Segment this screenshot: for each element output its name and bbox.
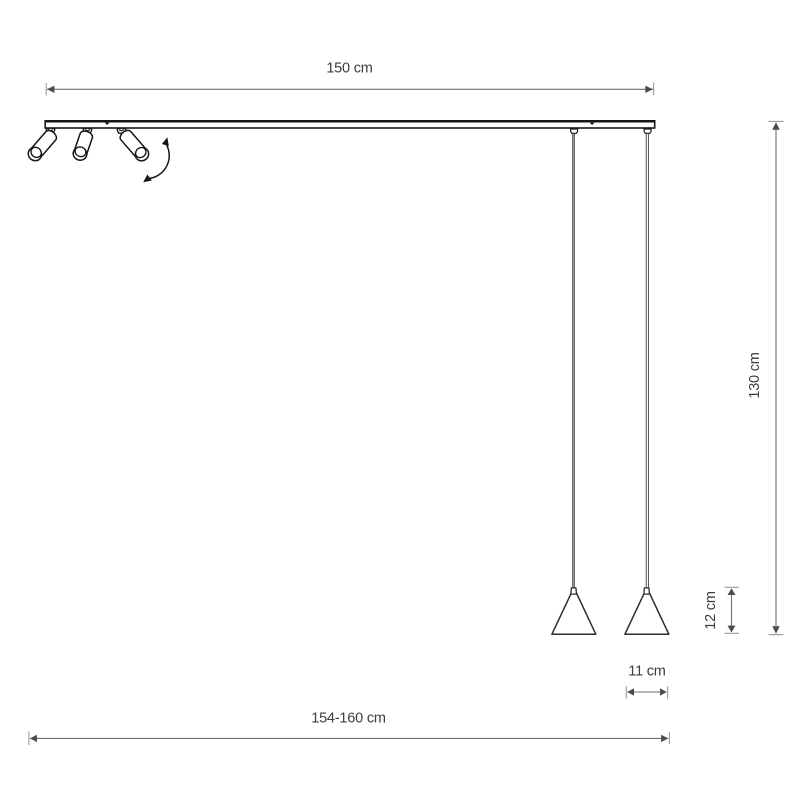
svg-text:150 cm: 150 cm <box>326 60 372 76</box>
svg-text:11 cm: 11 cm <box>628 664 666 680</box>
svg-text:12 cm: 12 cm <box>703 591 719 630</box>
svg-text:130 cm: 130 cm <box>747 352 763 398</box>
svg-text:154-160 cm: 154-160 cm <box>311 711 386 727</box>
